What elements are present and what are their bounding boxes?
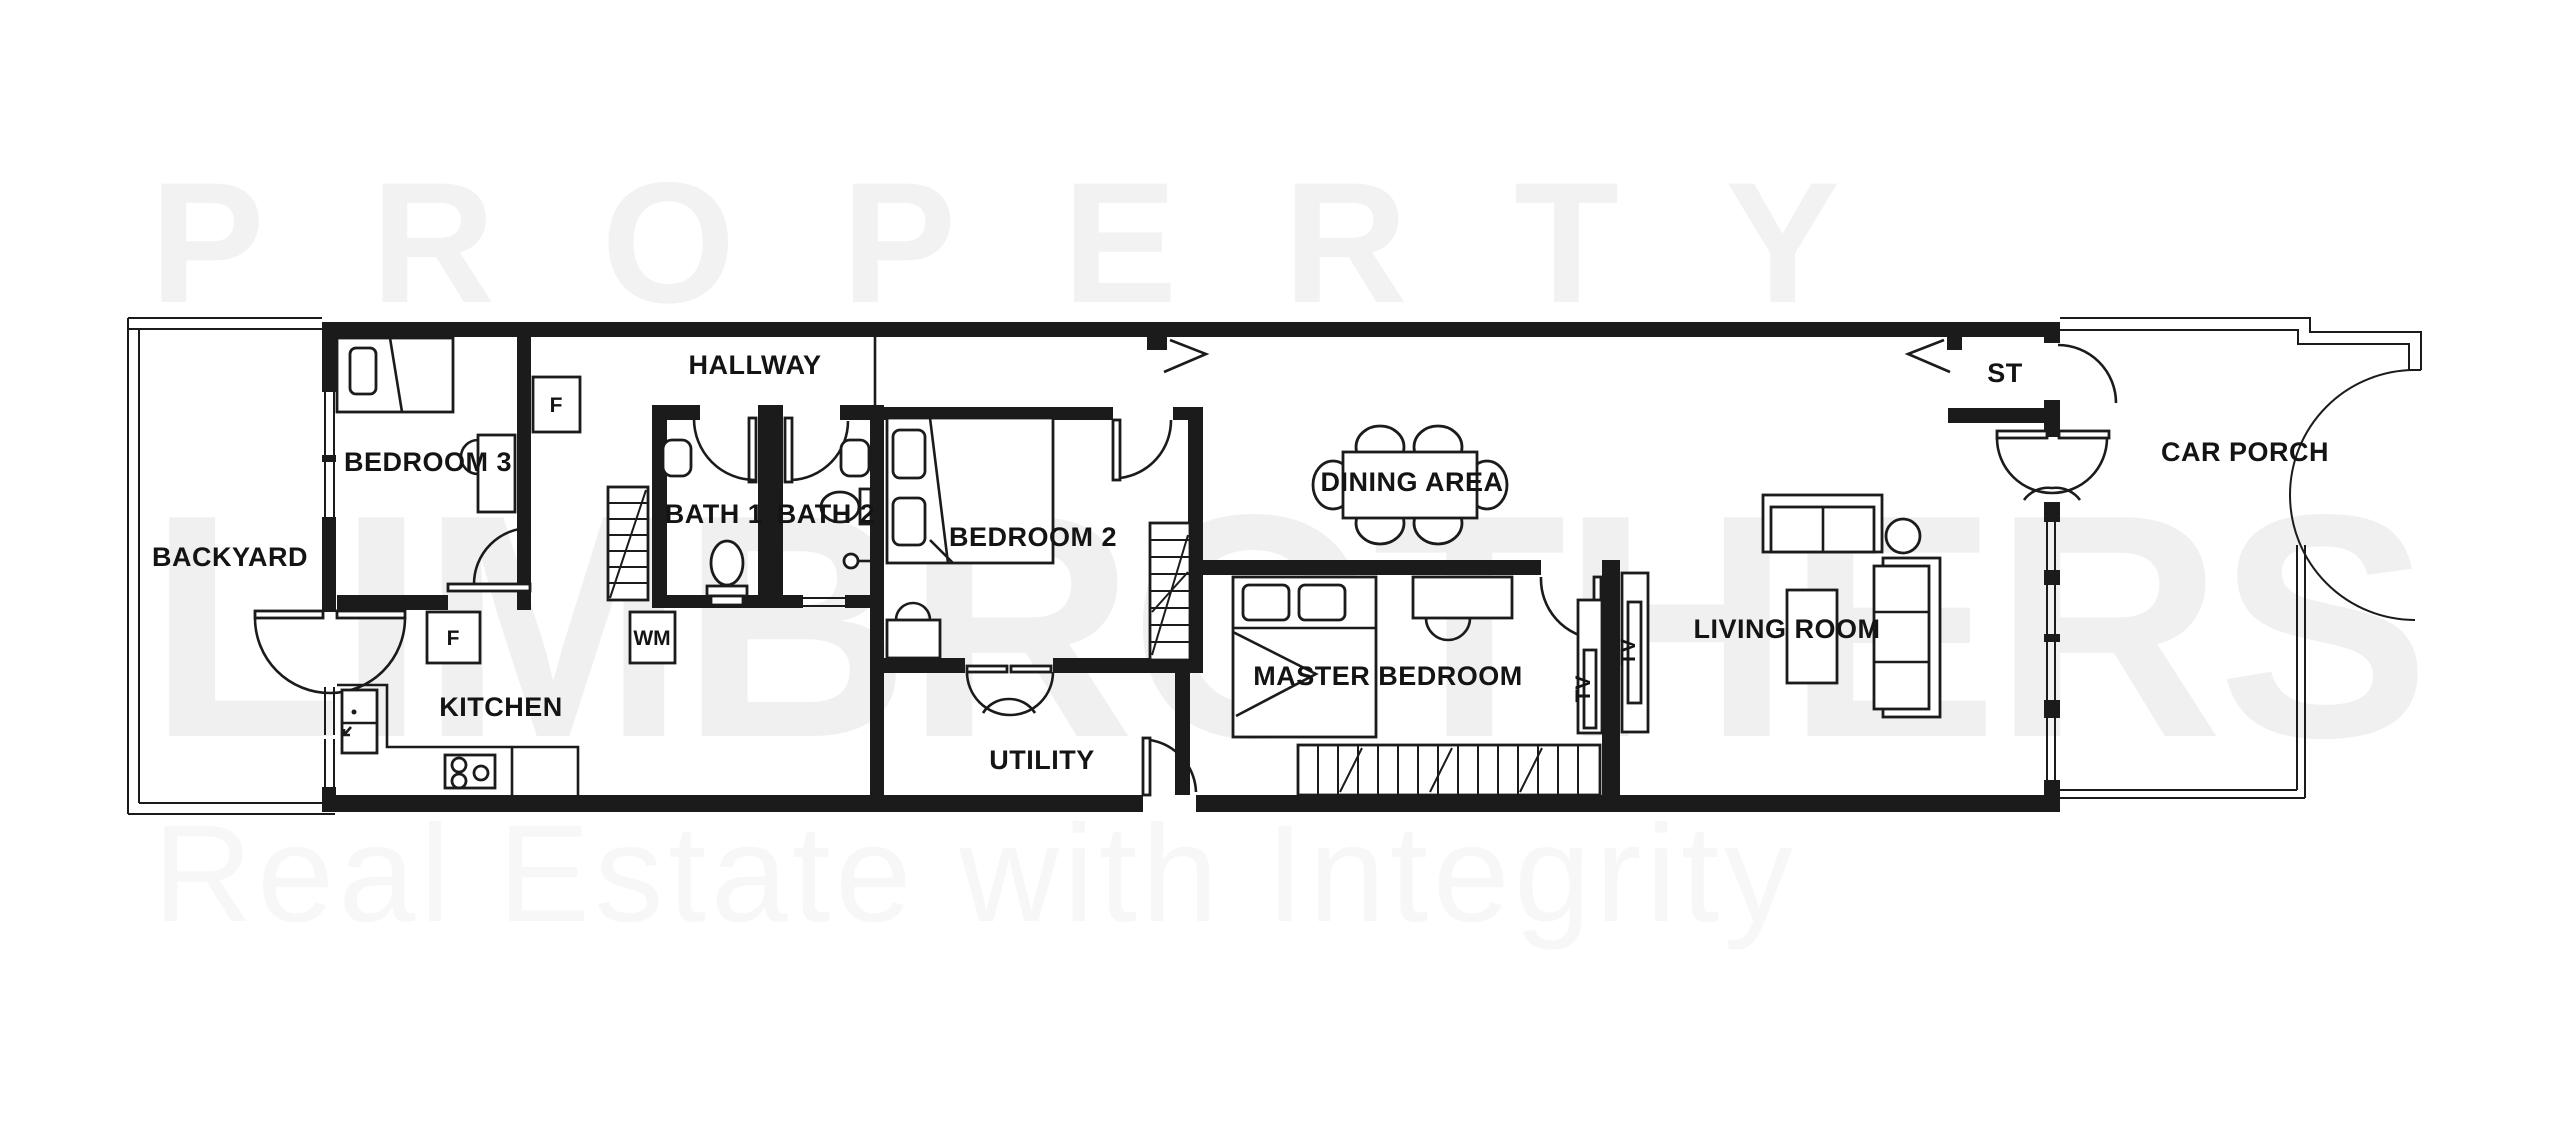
label-bath2: BATH 2: [777, 499, 876, 529]
wall-kitchen-utility: [870, 405, 884, 795]
watermark-top: PROPERTY: [150, 147, 1840, 339]
living-sofa: [1874, 558, 1940, 717]
backyard-door-leaf-west: [255, 611, 323, 618]
label-store: ST: [1987, 358, 2023, 388]
label-backyard: BACKYARD: [152, 542, 308, 572]
wall-bedroom2-bottom-west: [883, 658, 965, 673]
label-bath1: BATH 1: [665, 499, 764, 529]
wall-utility-right: [1175, 673, 1190, 795]
label-car-porch: CAR PORCH: [2161, 437, 2329, 467]
bedroom2-wardrobe: [1150, 523, 1190, 660]
bath2-door-leaf: [785, 418, 792, 482]
label-kitchen: KITCHEN: [439, 692, 563, 722]
master-wardrobe: [1298, 745, 1600, 795]
utility-door-leaf-west: [967, 666, 1007, 672]
entrance-door-leaf-east: [2059, 431, 2109, 438]
utility-ext-door-leaf: [1143, 738, 1150, 795]
label-bedroom2: BEDROOM 2: [949, 522, 1117, 552]
wall-master-living-divider: [1602, 560, 1620, 812]
bath1-door-leaf: [749, 418, 756, 482]
floor-plan-canvas: PROPERTY LIMBROTHERS Real Estate with In…: [0, 0, 2560, 1132]
entrance-door-leaf-west: [1997, 431, 2047, 438]
kitchen-fridge: [342, 690, 377, 753]
store-door-symbol: [1908, 340, 1950, 372]
living-loveseat: [1763, 495, 1882, 552]
label-tv-master: TV: [1572, 676, 1595, 703]
label-utility: UTILITY: [989, 745, 1095, 775]
wall-bedroom3-right: [517, 322, 531, 595]
dining-top-door-symbol: [1164, 340, 1206, 372]
wall-top: [322, 322, 2060, 337]
backyard-door-leaf-east: [337, 611, 405, 618]
bedroom3-door-leaf: [448, 584, 530, 591]
tv-console-master: [1578, 600, 1602, 733]
wall-store-bottom: [1948, 408, 2048, 423]
label-hallway: HALLWAY: [688, 350, 821, 380]
watermark: PROPERTY LIMBROTHERS Real Estate with In…: [148, 147, 2430, 951]
label-living-room: LIVING ROOM: [1694, 614, 1881, 644]
utility-door-leaf-east: [1011, 666, 1051, 672]
label-fridge-hallway: F: [550, 394, 563, 417]
label-dining-area: DINING AREA: [1320, 467, 1503, 497]
hallway-shelf: [608, 487, 648, 600]
label-fridge-kitchen: F: [447, 627, 460, 650]
bedroom3-bed: [337, 338, 453, 412]
watermark-bottom: Real Estate with Integrity: [153, 797, 1793, 951]
living-side-table: [1886, 519, 1920, 553]
bath1-toilet: [707, 541, 747, 605]
bedroom2-door-leaf: [1113, 420, 1120, 480]
wall-bottom-east: [1196, 795, 2060, 812]
wall-bedroom3-bottom: [337, 595, 448, 610]
wall-bottom-west: [322, 795, 1143, 812]
wall-master-top: [1203, 560, 1541, 575]
label-washing-machine: WM: [633, 627, 670, 650]
label-tv-living: TV: [1617, 639, 1640, 666]
front-door-swing: [2058, 345, 2116, 403]
floor-plan-page: { "watermark": { "top": "PROPERTY", "mid…: [0, 0, 2560, 1132]
master-bed: [1233, 577, 1376, 737]
label-bedroom3: BEDROOM 3: [344, 447, 512, 477]
label-master-bedroom: MASTER BEDROOM: [1253, 661, 1523, 691]
